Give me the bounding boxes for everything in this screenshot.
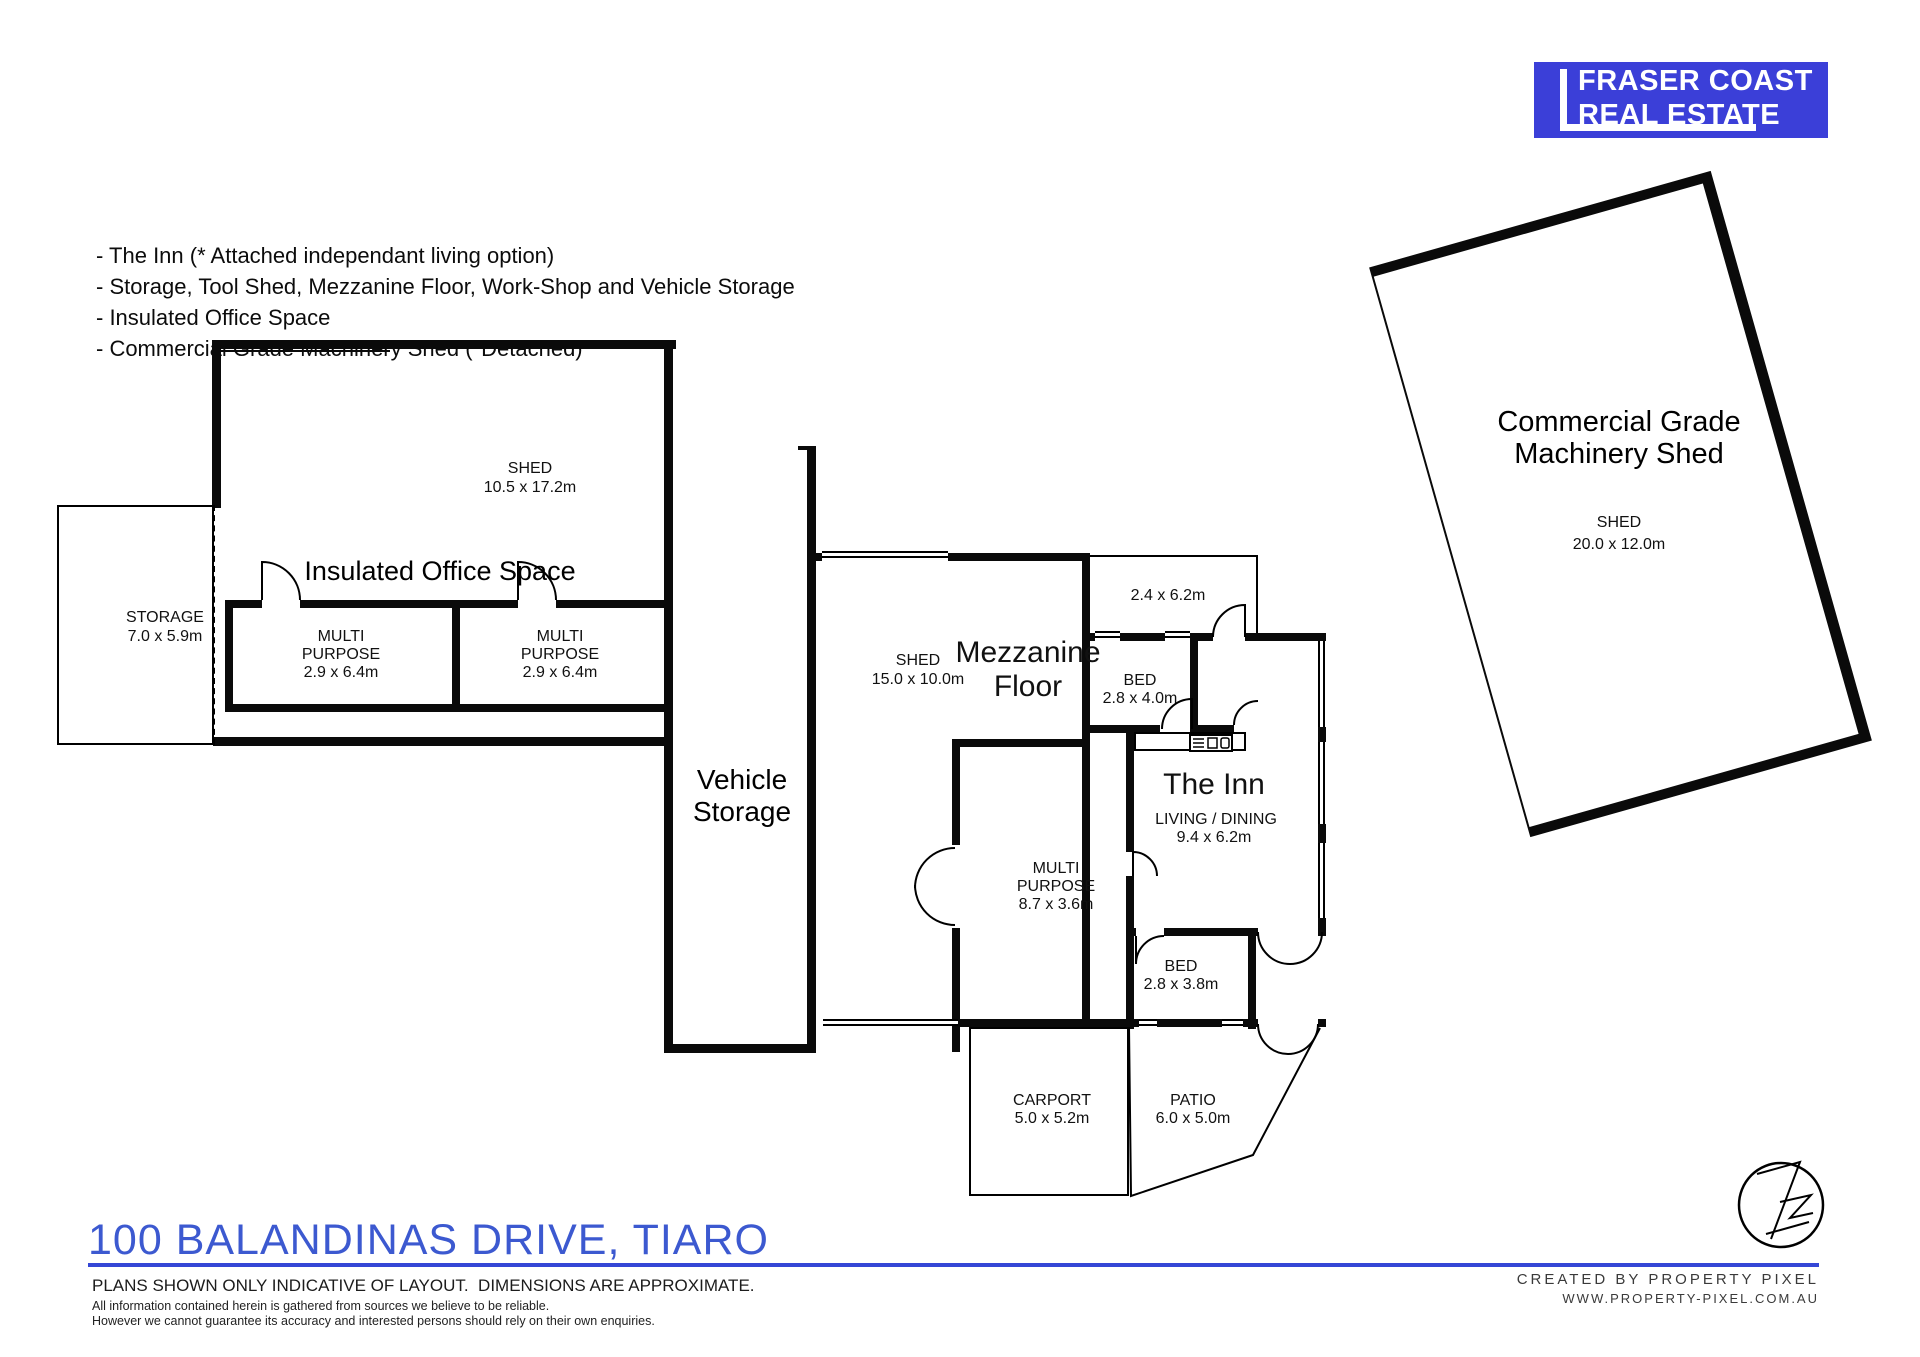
credit-url: WWW.PROPERTY-PIXEL.COM.AU (1562, 1291, 1819, 1306)
property-pixel-logo (1739, 1162, 1823, 1247)
shed15-bottom-window (823, 1019, 958, 1026)
vehicle-storage-label2: Storage (693, 796, 791, 828)
storage-label: STORAGE (126, 609, 204, 627)
page-title-address: 100 BALANDINAS DRIVE, TIARO (88, 1216, 769, 1265)
door-arc-icon (1234, 701, 1258, 725)
multi87-left-wall-seg (952, 739, 960, 845)
machinery-title1: Commercial Grade (1497, 406, 1740, 439)
inn-right-window (1318, 641, 1325, 727)
room24-top-line (1090, 555, 1258, 557)
left-shed-bottom-wall (213, 737, 668, 746)
multi1-label1: MULTI (318, 628, 365, 646)
bed2-dims: 2.8 x 3.8m (1144, 976, 1219, 994)
feature-item: - The Inn (* Attached independant living… (96, 240, 795, 271)
door-arc-icon (1136, 936, 1164, 964)
vehicle-storage-bottom-wall (664, 1044, 816, 1053)
door-arc-icon (1258, 932, 1290, 964)
office-title: Insulated Office Space (304, 556, 575, 587)
multi87-label2: PURPOSE (1017, 878, 1095, 896)
shed2-label: SHED (896, 652, 940, 670)
bed2-bottom-window (1139, 1019, 1157, 1026)
multi2-dims: 2.9 x 6.4m (523, 664, 598, 682)
mezzanine-label2: Floor (994, 670, 1062, 705)
inn-left-wall-seg (1126, 725, 1134, 852)
inn-top-wall-seg (1245, 633, 1326, 641)
door-arc-icon (915, 848, 955, 888)
bottom-wall-seg (1243, 1019, 1258, 1027)
multi87-dims: 8.7 x 3.6m (1019, 896, 1094, 914)
multi2-label1: MULTI (537, 628, 584, 646)
middle-divider-wall (1082, 553, 1090, 1052)
inn-right-window (1318, 742, 1325, 824)
inn-top-wall-seg (1190, 633, 1213, 641)
office-left-wall (225, 600, 233, 712)
office-divider-wall (452, 600, 460, 712)
patio-dims: 6.0 x 5.0m (1156, 1110, 1231, 1128)
feature-item: - Storage, Tool Shed, Mezzanine Floor, W… (96, 271, 795, 302)
fine-print-line: However we cannot guarantee its accuracy… (92, 1314, 655, 1328)
fine-print-line: All information contained herein is gath… (92, 1299, 549, 1313)
inn-left-wall-seg (1126, 876, 1134, 1029)
bed2-label: BED (1165, 958, 1198, 976)
middle-left-wall-cap (798, 446, 816, 450)
door-arc-icon (1258, 1024, 1288, 1054)
patio-label: PATIO (1170, 1092, 1216, 1110)
door-arc-icon (1290, 932, 1322, 964)
logo-text-line1: FRASER COAST (1578, 65, 1813, 98)
inn-title: The Inn (1163, 768, 1265, 803)
bed1-right-wall (1190, 641, 1198, 733)
kitchen-bench (1134, 732, 1246, 751)
inn-living-dims: 9.4 x 6.2m (1177, 829, 1252, 847)
feature-item: - Insulated Office Space (96, 302, 795, 333)
room24-right-line (1256, 555, 1258, 641)
bed2-top-wall-seg (1164, 928, 1258, 936)
machinery-shed-outline (1369, 171, 1872, 837)
bottom-wall-seg (958, 1019, 1139, 1027)
office-bottom-wall (225, 704, 664, 712)
multi87-top-wall (952, 739, 1090, 747)
inn-right-wall-seg (1318, 824, 1326, 843)
mezzanine-label1: Mezzanine (955, 636, 1100, 671)
office-top-wall-seg (556, 600, 664, 608)
bed1-label: BED (1124, 672, 1157, 690)
storage-dashed-boundary (213, 505, 215, 745)
multi1-label2: PURPOSE (302, 646, 380, 664)
inn-living-label: LIVING / DINING (1155, 811, 1277, 829)
fraser-coast-logo: FRASER COAST REAL ESTATE (1534, 62, 1828, 138)
multi87-left-wall-seg (952, 928, 960, 1052)
vehicle-storage-label1: Vehicle (697, 764, 787, 796)
carport-dims: 5.0 x 5.2m (1015, 1110, 1090, 1128)
machinery-shed-label: SHED (1597, 514, 1641, 532)
shed1-dims: 10.5 x 17.2m (484, 479, 577, 497)
inn-right-wall-seg (1318, 727, 1326, 742)
door-arc-icon (915, 885, 955, 925)
door-arc-icon (1288, 1024, 1318, 1054)
multi87-label1: MULTI (1033, 860, 1080, 878)
logo-l-shape-vertical (1560, 69, 1567, 131)
shed1-label: SHED (508, 460, 552, 478)
door-arc-icon (1133, 852, 1157, 876)
carport-label: CARPORT (1013, 1092, 1091, 1110)
logo-text-line2: REAL ESTATE (1578, 99, 1780, 132)
credit-line: CREATED BY PROPERTY PIXEL (1517, 1271, 1819, 1288)
inn-top-wall-seg (1120, 633, 1165, 641)
inn-top-window (1165, 631, 1190, 638)
bed2-bottom-window (1222, 1019, 1243, 1026)
bottom-wall-seg (1318, 1019, 1326, 1027)
middle-top-wall-seg (807, 553, 822, 561)
inn-right-wall-seg (1318, 918, 1326, 936)
left-shed-top-inner-line (218, 350, 390, 352)
bed1-dims: 2.8 x 4.0m (1103, 690, 1178, 708)
bottom-wall-seg (1157, 1019, 1222, 1027)
middle-left-wall (807, 446, 816, 1052)
middle-top-window (822, 551, 948, 558)
left-shed-right-wall (664, 340, 673, 1052)
floor-plan-page: FRASER COAST REAL ESTATE - The Inn (* At… (0, 0, 1920, 1357)
office-top-wall-seg (300, 600, 518, 608)
inn-right-window (1318, 843, 1325, 918)
left-shed-top-wall (212, 340, 676, 349)
footer-divider (88, 1263, 1819, 1267)
multi2-label2: PURPOSE (521, 646, 599, 664)
disclaimer-line: PLANS SHOWN ONLY INDICATIVE OF LAYOUT. D… (92, 1276, 755, 1296)
multi1-dims: 2.9 x 6.4m (304, 664, 379, 682)
door-arc-icon (1213, 605, 1245, 637)
middle-top-wall-seg (948, 553, 1090, 561)
room24-dims: 2.4 x 6.2m (1131, 587, 1206, 605)
storage-dims: 7.0 x 5.9m (128, 628, 203, 646)
door-arc-icon (262, 562, 300, 600)
shed2-dims: 15.0 x 10.0m (872, 671, 965, 689)
left-shed-left-wall (212, 340, 221, 508)
machinery-title2: Machinery Shed (1514, 438, 1724, 471)
machinery-shed-dims: 20.0 x 12.0m (1573, 536, 1666, 554)
bed2-right-wall (1248, 936, 1256, 1029)
bed2-top-wall-seg (1126, 928, 1136, 936)
